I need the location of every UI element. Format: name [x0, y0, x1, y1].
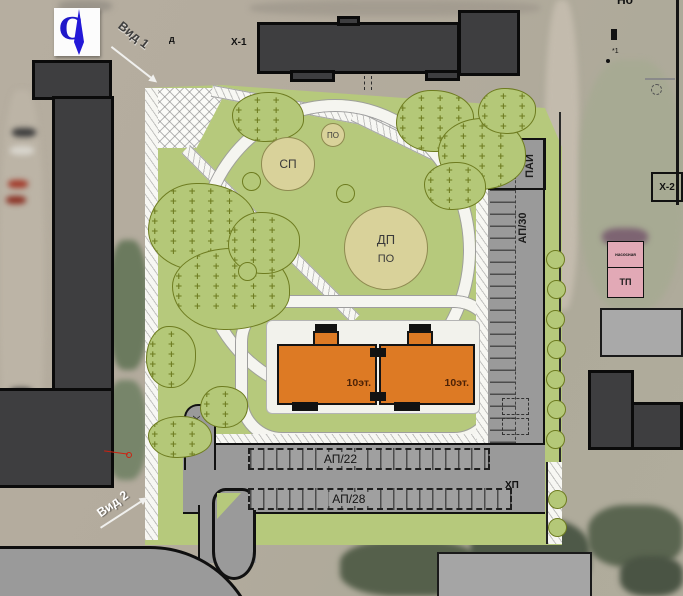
existing-building-right-light — [600, 308, 683, 357]
tree-cluster-icon: + + + + + + + + + + + + + + + + + + + + … — [478, 88, 536, 134]
walkway-left — [145, 88, 158, 540]
transformer-label: ТП — [620, 277, 632, 287]
north-needle-icon — [54, 8, 100, 56]
new-building-left-floors: 10эт. — [347, 377, 371, 389]
existing-building-right-dark — [588, 370, 634, 450]
photo-car — [6, 196, 26, 204]
existing-building-top-bump — [337, 16, 360, 26]
building-connector — [370, 348, 386, 357]
existing-building-top — [257, 22, 460, 74]
red-marker-dot — [126, 452, 132, 458]
area-po-small-circle: ПО — [321, 123, 345, 147]
photo-mark — [611, 29, 617, 40]
tree-cross-pattern: + + + + + + + + + + + + + + + + + + + + … — [235, 96, 284, 142]
area-dp-label: ДП — [377, 232, 395, 247]
tree-icon — [546, 310, 565, 329]
parking-row-ap22: АП/22 — [248, 448, 490, 470]
building-connector — [370, 392, 386, 401]
utility-block: насосная ТП — [607, 241, 644, 298]
tree-icon — [548, 490, 567, 509]
area-dp-circle: ДП ПО — [344, 206, 428, 290]
dashed-connector — [371, 76, 372, 90]
new-building-left: 10эт. — [277, 344, 377, 405]
dashed-connector — [364, 76, 365, 90]
photo-trees — [108, 240, 148, 370]
view1-label: Вид 1 — [115, 19, 151, 52]
existing-building-top-notch — [425, 70, 460, 81]
tree-icon — [547, 340, 566, 359]
curb-line — [645, 78, 675, 80]
transformer-cell: ТП — [608, 268, 643, 295]
tree-icon — [547, 280, 566, 299]
tree-cross-pattern: + + + + + + + + + + + + + + + + + + + + … — [427, 166, 476, 210]
entrance-comb — [292, 402, 318, 411]
tree-icon — [546, 430, 565, 449]
building-x2-label: Х-2 — [659, 182, 675, 193]
area-sp-circle: СП — [261, 137, 315, 191]
tree-cluster-icon: + + + + + + + + + + + + + + + + + + + + … — [146, 326, 196, 388]
photo-top-partial-label: Но — [617, 0, 633, 7]
parking-row-ap28: АП/28 — [248, 488, 512, 510]
existing-building-bottom-light — [437, 552, 592, 596]
tree-cluster-icon: + + + + + + + + + + + + + + + + + + + + … — [200, 386, 248, 428]
dashed-circle-mark — [651, 84, 662, 95]
pump-station-cell: насосная — [608, 242, 643, 268]
tree-icon — [547, 400, 566, 419]
photo-star1-label: *1 — [612, 48, 619, 55]
tree-icon — [548, 518, 567, 537]
tree-cluster-icon: + + + + + + + + + + + + + + + + + + + + … — [228, 212, 300, 274]
parking-hp-label: ХП — [505, 480, 519, 491]
tree-cross-pattern: + + + + + + + + + + + + + + + + + + + + … — [481, 92, 530, 134]
new-building-right-floors: 10эт. — [445, 377, 469, 389]
area-dp-po-label: ПО — [378, 253, 394, 265]
building-x2-box: Х-2 — [651, 172, 683, 202]
tree-cluster-icon: + + + + + + + + + + + + + + + + + + + + … — [232, 92, 304, 142]
tree-icon — [242, 172, 261, 191]
tree-cross-pattern: + + + + + + + + + + + + + + + + + + + + … — [149, 330, 179, 388]
photo-dot — [606, 59, 610, 63]
tree-icon — [238, 262, 257, 281]
new-building-right: 10эт. — [379, 344, 475, 405]
tree-cross-pattern: + + + + + + + + + + + + + + + + + + + + … — [203, 390, 233, 428]
existing-building-top-notch — [290, 70, 335, 82]
entrance-comb — [394, 402, 420, 411]
building-x1-label: Х-1 — [231, 37, 247, 48]
photo-car — [12, 128, 36, 137]
parking-ap22-label: АП/22 — [320, 452, 361, 466]
tree-icon — [546, 250, 565, 269]
parking-ap30-label: АП/30 — [517, 206, 529, 250]
parking-stalls-small — [502, 398, 529, 415]
tree-cluster-icon: + + + + + + + + + + + + + + + + + + + + … — [148, 416, 212, 458]
tree-cluster-icon: + + + + + + + + + + + + + + + + + + + + … — [424, 162, 486, 210]
tree-cross-pattern: + + + + + + + + + + + + + + + + + + + + … — [151, 420, 200, 458]
north-compass: С — [54, 8, 100, 56]
existing-building-left-foot — [0, 388, 114, 488]
view1-arrow-icon — [111, 46, 152, 78]
photo-trees — [620, 556, 683, 596]
area-sp-label: СП — [279, 157, 296, 171]
existing-building-left-head — [32, 60, 112, 100]
tree-icon — [336, 184, 355, 203]
pump-station-label: насосная — [615, 252, 636, 257]
existing-building-left-bar — [52, 96, 114, 396]
view2-label: Вид 2 — [94, 488, 131, 520]
photo-car — [10, 146, 34, 155]
tree-icon — [546, 370, 565, 389]
photo-car — [8, 180, 28, 188]
island-green-wedge — [217, 493, 241, 519]
area-po-small-label: ПО — [327, 131, 339, 140]
photo-letter-d: д — [169, 34, 175, 44]
site-plan-canvas: Х-1 д Но *1 Х-2 насосная ТП — [0, 0, 683, 596]
existing-building-right-dark — [631, 402, 683, 450]
parking-ap28-label: АП/28 — [328, 492, 369, 506]
existing-building-topright — [458, 10, 520, 76]
parking-stalls-small — [502, 418, 529, 435]
